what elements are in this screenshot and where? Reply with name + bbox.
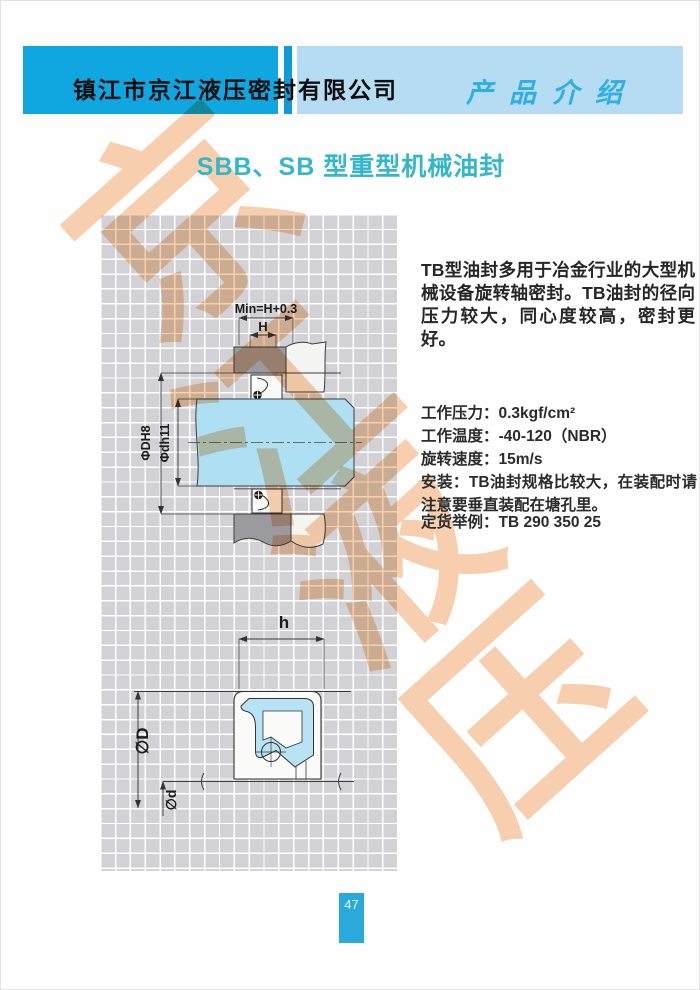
dim-label-min: Min=H+0.3 [235,302,298,316]
spec-working-temperature: 工作温度：-40-120（NBR） [421,425,697,448]
seal-profile-drawing: h ∅D ∅d [133,613,354,816]
housing-upper-section [234,347,286,373]
housing-lower [291,514,325,547]
company-name: 镇江市京江液压密封有限公司 [73,71,393,105]
page-title: SBB、SB 型重型机械油封 [61,147,641,183]
page-number-badge: 47 [339,893,364,943]
order-example: 定货举例：TB 290 350 25 [421,510,601,532]
housing-upper [286,342,326,392]
spec-list: 工作压力：0.3kgf/cm² 工作温度：-40-120（NBR） 旋转速度：1… [421,402,697,517]
housing-lower-section [234,514,291,546]
spec-rotation-speed: 旋转速度：15m/s [421,448,697,471]
seal-cross-section-upper [251,375,282,400]
watermark-char: 压 [379,571,670,862]
seal-assembly-drawing: Min=H+0.3 H [139,302,362,547]
dim-label-phiD: ∅D [133,727,152,754]
section-title: 产品介绍 [466,71,638,110]
catalog-page: 镇江市京江液压密封有限公司 产品介绍 SBB、SB 型重型机械油封 Min=H+… [0,0,700,990]
dim-label-phid: ∅d [163,790,179,811]
technical-drawing: Min=H+0.3 H [100,214,398,871]
dim-label-h: h [279,613,289,632]
dim-label-H: H [258,319,267,334]
seal-cross-section-lower [252,489,282,513]
dim-label-phidh11: Φdh11 [158,424,172,463]
spec-working-pressure: 工作压力：0.3kgf/cm² [421,402,697,425]
dim-label-phiDH8: ΦDH8 [139,425,153,460]
intro-paragraph: TB型油封多用于冶金行业的大型机械设备旋转轴密封。TB油封的径向压力较大，同心度… [421,259,695,351]
